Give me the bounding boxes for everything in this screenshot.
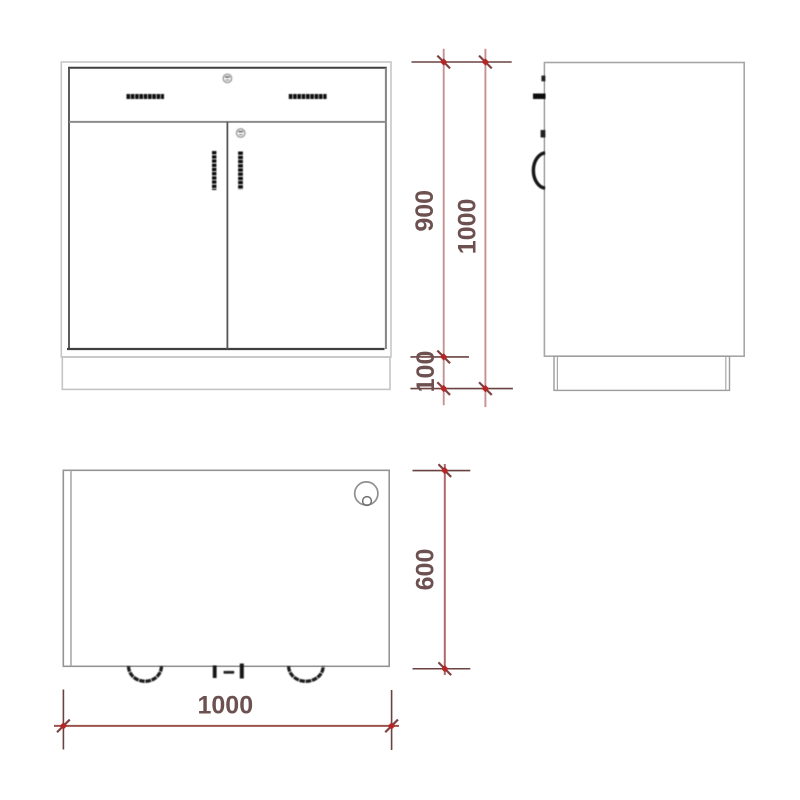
svg-text:100: 100 xyxy=(412,351,440,393)
svg-text:1000: 1000 xyxy=(454,199,482,255)
svg-text:1000: 1000 xyxy=(197,692,253,720)
svg-text:900: 900 xyxy=(411,190,439,232)
svg-text:600: 600 xyxy=(412,549,440,591)
